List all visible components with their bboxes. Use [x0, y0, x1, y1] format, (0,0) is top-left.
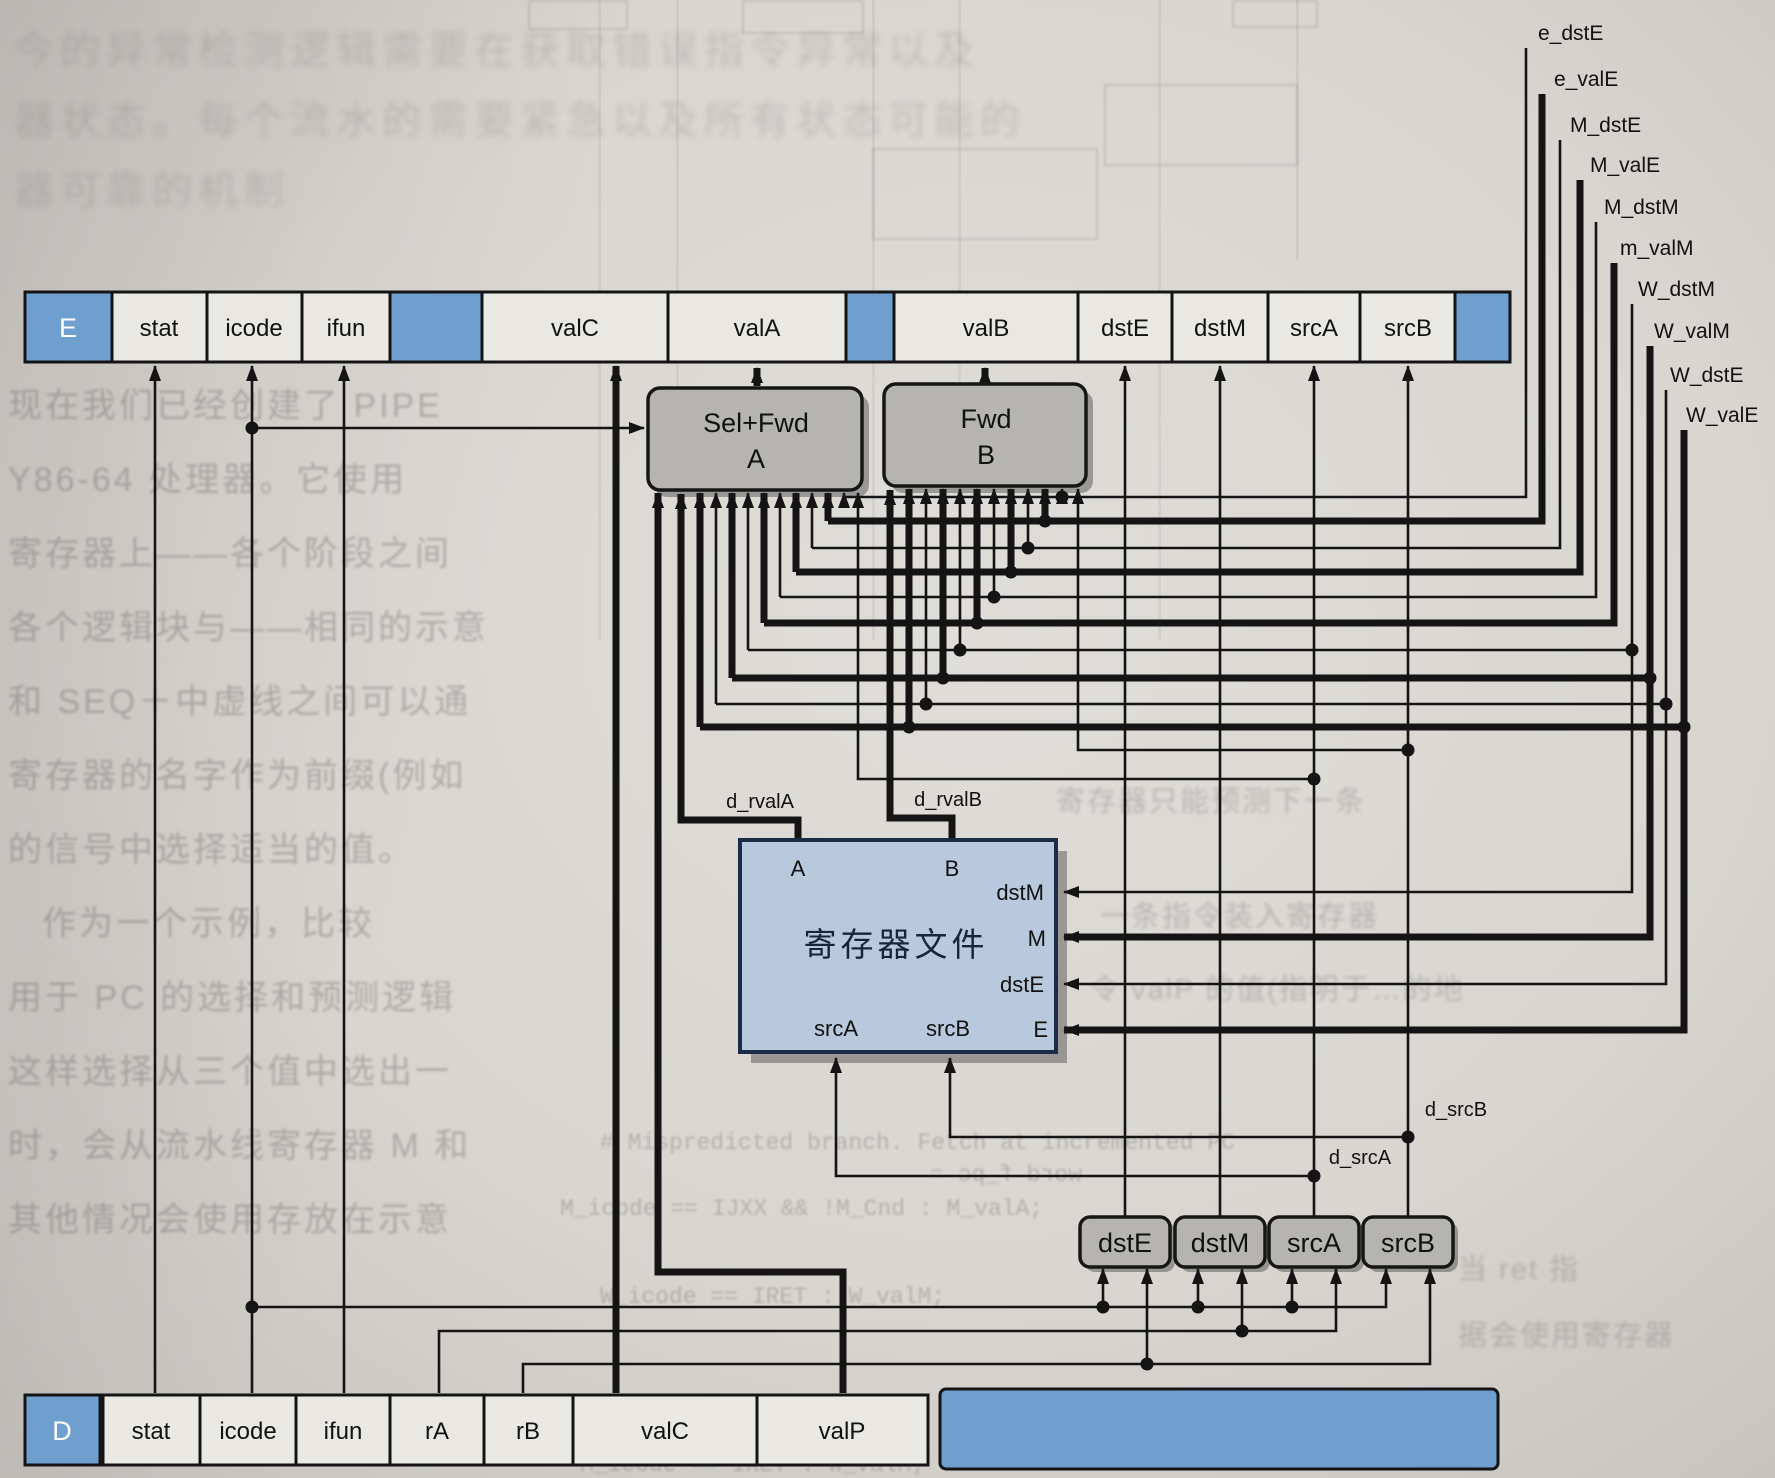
- register-file-read-feeds: [836, 1058, 1408, 1176]
- sel-fwd-a-label: Sel+Fwd: [703, 408, 809, 438]
- dstm-box-label: dstM: [1191, 1228, 1250, 1258]
- fwd-b-label: Fwd: [960, 404, 1011, 434]
- wire-d-srca-to-rf: [836, 1058, 1314, 1176]
- e-field-srcb: srcB: [1384, 315, 1432, 342]
- register-file: 寄存器文件 A B dstM M dstE E srcA srcB: [740, 840, 1067, 1063]
- e-field-valb: valB: [963, 315, 1010, 342]
- e-field-vala: valA: [734, 315, 781, 342]
- d-pipeline-register: D stat icode ifun rA rB valC valP: [25, 1389, 1498, 1469]
- rf-port-m: M: [1028, 926, 1046, 951]
- label-M_valE: M_valE: [1590, 154, 1660, 177]
- signal-W_valM: [732, 346, 1650, 678]
- rf-port-e: E: [1033, 1017, 1048, 1042]
- signal-M_valE: [796, 180, 1580, 572]
- e-field-dste: dstE: [1101, 315, 1149, 342]
- rf-port-srca: srcA: [814, 1016, 858, 1041]
- decode-output-risers: [1125, 366, 1408, 1217]
- rf-port-a: A: [791, 856, 806, 881]
- label-m_valM: m_valM: [1620, 237, 1694, 260]
- book-page-photo: 今的异常检测逻辑需要在获取错误指令异常以及 器状态。每个流水的需要紧急以及所有状…: [0, 0, 1775, 1478]
- d-field-icode: icode: [219, 1418, 276, 1445]
- label-M_dstM: M_dstM: [1604, 196, 1679, 219]
- rf-port-dste: dstE: [1000, 972, 1044, 997]
- d-register-tag: D: [52, 1416, 72, 1446]
- e-register-tag: E: [59, 313, 77, 343]
- dste-box-label: dstE: [1098, 1228, 1152, 1258]
- d-field-ifun: ifun: [324, 1418, 363, 1445]
- label-W_dstE: W_dstE: [1670, 364, 1744, 387]
- e-field-ifun: ifun: [327, 315, 366, 342]
- rf-port-dstm: dstM: [996, 880, 1044, 905]
- register-file-title: 寄存器文件: [804, 926, 989, 963]
- e-pipeline-register: E stat icode ifun valC valA valB dstE ds…: [25, 292, 1510, 362]
- label-d_rvalb: d_rvalB: [914, 789, 982, 811]
- d-pad-bar: [940, 1389, 1498, 1469]
- label-W_valE: W_valE: [1686, 404, 1758, 427]
- pipe-decode-diagram: Sel+Fwd A Fwd B 寄存器文件 A B dstM M dstE E …: [0, 0, 1775, 1478]
- label-d_rvala: d_rvalA: [726, 791, 794, 813]
- signal-W_dstE-to-rf: [1064, 704, 1666, 984]
- srcb-box-label: srcB: [1381, 1228, 1435, 1258]
- e-pad-cell: [390, 292, 482, 362]
- d-field-ra: rA: [425, 1418, 449, 1445]
- d-field-valp: valP: [819, 1418, 866, 1445]
- decode-logic-boxes: dstE dstM srcA srcB: [1080, 1217, 1458, 1272]
- label-e_dstE: e_dstE: [1538, 22, 1603, 45]
- rf-port-srcb: srcB: [926, 1016, 970, 1041]
- d-field-rb: rB: [516, 1418, 540, 1445]
- d-field-valc: valC: [641, 1418, 689, 1445]
- sel-fwd-a-label2: A: [747, 444, 765, 474]
- e-field-icode: icode: [225, 315, 282, 342]
- wire-ra-bus: [439, 1269, 1336, 1393]
- signal-W_valM-to-rf: [1064, 678, 1650, 937]
- label-W_dstM: W_dstM: [1638, 278, 1715, 301]
- signal-W_dstM-to-rf: [1064, 650, 1632, 892]
- fwd-b-block: Fwd B: [884, 384, 1093, 493]
- label-d_srca: d_srcA: [1329, 1147, 1392, 1169]
- srca-box-label: srcA: [1287, 1228, 1341, 1258]
- e-pad-cell: [1455, 292, 1510, 362]
- label-e_valE: e_valE: [1554, 68, 1618, 91]
- rf-port-b: B: [945, 856, 960, 881]
- label-M_dstE: M_dstE: [1570, 114, 1641, 137]
- e-field-dstm: dstM: [1194, 315, 1246, 342]
- e-pad-cell: [846, 292, 894, 362]
- e-field-valc: valC: [551, 315, 599, 342]
- e-field-stat: stat: [140, 315, 179, 342]
- d-field-stat: stat: [132, 1418, 171, 1445]
- e-field-srca: srcA: [1290, 315, 1338, 342]
- wire-d-srcb-to-rf: [950, 1058, 1408, 1137]
- fwd-b-label2: B: [977, 440, 995, 470]
- label-d_srcb: d_srcB: [1425, 1099, 1487, 1121]
- label-W_valM: W_valM: [1654, 320, 1730, 343]
- sel-fwd-a-block: Sel+Fwd A: [648, 388, 869, 497]
